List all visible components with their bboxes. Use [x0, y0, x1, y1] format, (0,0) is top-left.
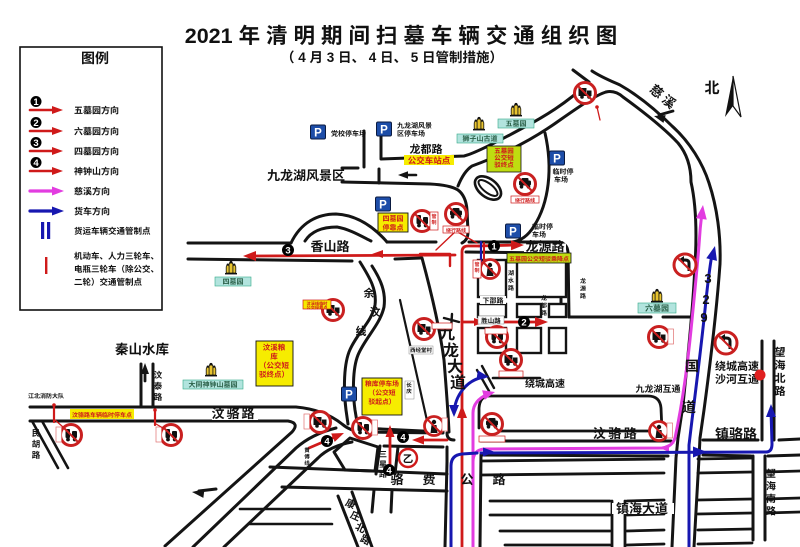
svg-text:路: 路	[775, 383, 786, 399]
svg-text:1: 1	[33, 94, 39, 108]
svg-text:线: 线	[304, 459, 310, 467]
svg-text:大同神钟山墓园: 大同神钟山墓园	[189, 380, 238, 390]
svg-text:四墓园方向: 四墓园方向	[74, 145, 119, 158]
svg-text:9: 9	[700, 307, 707, 326]
svg-text:驳起点）: 驳起点）	[368, 396, 395, 406]
svg-text:慈溪方向: 慈溪方向	[74, 185, 110, 198]
svg-text:四墓园: 四墓园	[223, 277, 244, 287]
svg-text:沙河互通: 沙河互通	[715, 371, 759, 387]
svg-text:绕行路线: 绕行路线	[446, 227, 466, 234]
svg-text:下邵路: 下邵路	[483, 296, 504, 306]
svg-text:电瓶三轮车（除公交、: 电瓶三轮车（除公交、	[74, 263, 159, 275]
svg-text:车场: 车场	[554, 175, 568, 185]
svg-text:九龙湖风景区: 九龙湖风景区	[267, 165, 345, 184]
svg-text:线: 线	[356, 323, 367, 339]
svg-text:北: 北	[704, 77, 719, 98]
svg-text:4: 4	[324, 433, 330, 447]
svg-text:（ 4 月 3 日、 4 日、 5 日管制措施）: （ 4 月 3 日、 4 日、 5 日管制措施）	[281, 46, 503, 66]
svg-text:汶骆路车辆临时停车点: 汶骆路车辆临时停车点	[72, 410, 132, 419]
svg-text:路: 路	[154, 391, 163, 403]
svg-text:汶: 汶	[370, 304, 381, 320]
svg-text:2: 2	[521, 314, 526, 328]
svg-text:余: 余	[364, 285, 375, 301]
svg-text:九龙湖互通: 九龙湖互通	[635, 382, 680, 395]
svg-text:2: 2	[33, 115, 38, 129]
svg-text:3: 3	[33, 135, 38, 149]
svg-text:五墓园方向: 五墓园方向	[74, 104, 119, 117]
svg-text:制: 制	[431, 219, 436, 226]
svg-text:汶骆路: 汶骆路	[593, 423, 640, 442]
svg-text:二轮）交通管制点: 二轮）交通管制点	[74, 276, 143, 288]
svg-text:图例: 图例	[81, 48, 109, 68]
svg-text:西经堂村: 西经堂村	[410, 346, 433, 354]
svg-text:路: 路	[32, 449, 41, 461]
svg-text:汶骆路: 汶骆路	[211, 403, 256, 422]
svg-text:4: 4	[33, 155, 39, 169]
svg-text:车场: 车场	[532, 230, 546, 240]
svg-text:秦山水库: 秦山水库	[115, 338, 169, 358]
svg-text:五墓园: 五墓园	[506, 119, 527, 129]
svg-text:货运车辆交通管制点: 货运车辆交通管制点	[74, 225, 151, 237]
svg-text:六墓园: 六墓园	[645, 303, 669, 314]
svg-text:胜山路: 胜山路	[481, 315, 501, 325]
svg-text:3: 3	[704, 268, 711, 287]
svg-text:路: 路	[492, 469, 505, 488]
svg-text:驳终点: 驳终点	[494, 159, 514, 169]
svg-text:3: 3	[285, 242, 290, 256]
svg-text:绕城高速: 绕城高速	[525, 375, 565, 390]
svg-text:路: 路	[541, 308, 547, 317]
svg-text:六墓园方向: 六墓园方向	[74, 125, 119, 138]
svg-text:公: 公	[460, 469, 473, 488]
svg-text:2: 2	[702, 289, 709, 308]
svg-text:路: 路	[766, 503, 776, 518]
svg-text:路: 路	[580, 291, 586, 300]
svg-text:镇海大道: 镇海大道	[616, 498, 668, 517]
svg-text:公交停靠点: 公交停靠点	[307, 305, 329, 311]
svg-text:4: 4	[386, 462, 392, 476]
svg-text:神钟山方向: 神钟山方向	[74, 165, 119, 178]
svg-text:停靠点: 停靠点	[383, 223, 404, 233]
svg-text:机动车、人力三轮车、: 机动车、人力三轮车、	[74, 250, 159, 262]
svg-text:国: 国	[685, 356, 699, 376]
svg-text:4: 4	[400, 429, 406, 443]
svg-text:庆: 庆	[406, 387, 412, 395]
svg-text:公交车站点: 公交车站点	[408, 155, 451, 167]
svg-text:狮子山古道: 狮子山古道	[463, 134, 498, 144]
svg-text:路: 路	[508, 283, 514, 292]
svg-text:区停车场: 区停车场	[397, 129, 425, 139]
svg-text:道: 道	[450, 369, 466, 393]
svg-text:绕行路线: 绕行路线	[515, 197, 535, 204]
svg-text:驳终点）: 驳终点）	[259, 369, 289, 380]
svg-text:五墓园公交短驳乘降点: 五墓园公交短驳乘降点	[509, 254, 569, 263]
svg-text:费: 费	[422, 469, 435, 488]
svg-text:党校停车场: 党校停车场	[331, 129, 366, 139]
svg-text:道: 道	[682, 397, 696, 417]
svg-text:货车方向: 货车方向	[74, 205, 110, 218]
svg-text:乙: 乙	[403, 452, 414, 467]
svg-text:江北消防大队: 江北消防大队	[28, 391, 64, 400]
svg-text:香山路: 香山路	[310, 236, 349, 255]
svg-text:制: 制	[474, 267, 479, 274]
svg-text:1: 1	[491, 238, 497, 252]
svg-text:镇骆路: 镇骆路	[715, 424, 757, 444]
